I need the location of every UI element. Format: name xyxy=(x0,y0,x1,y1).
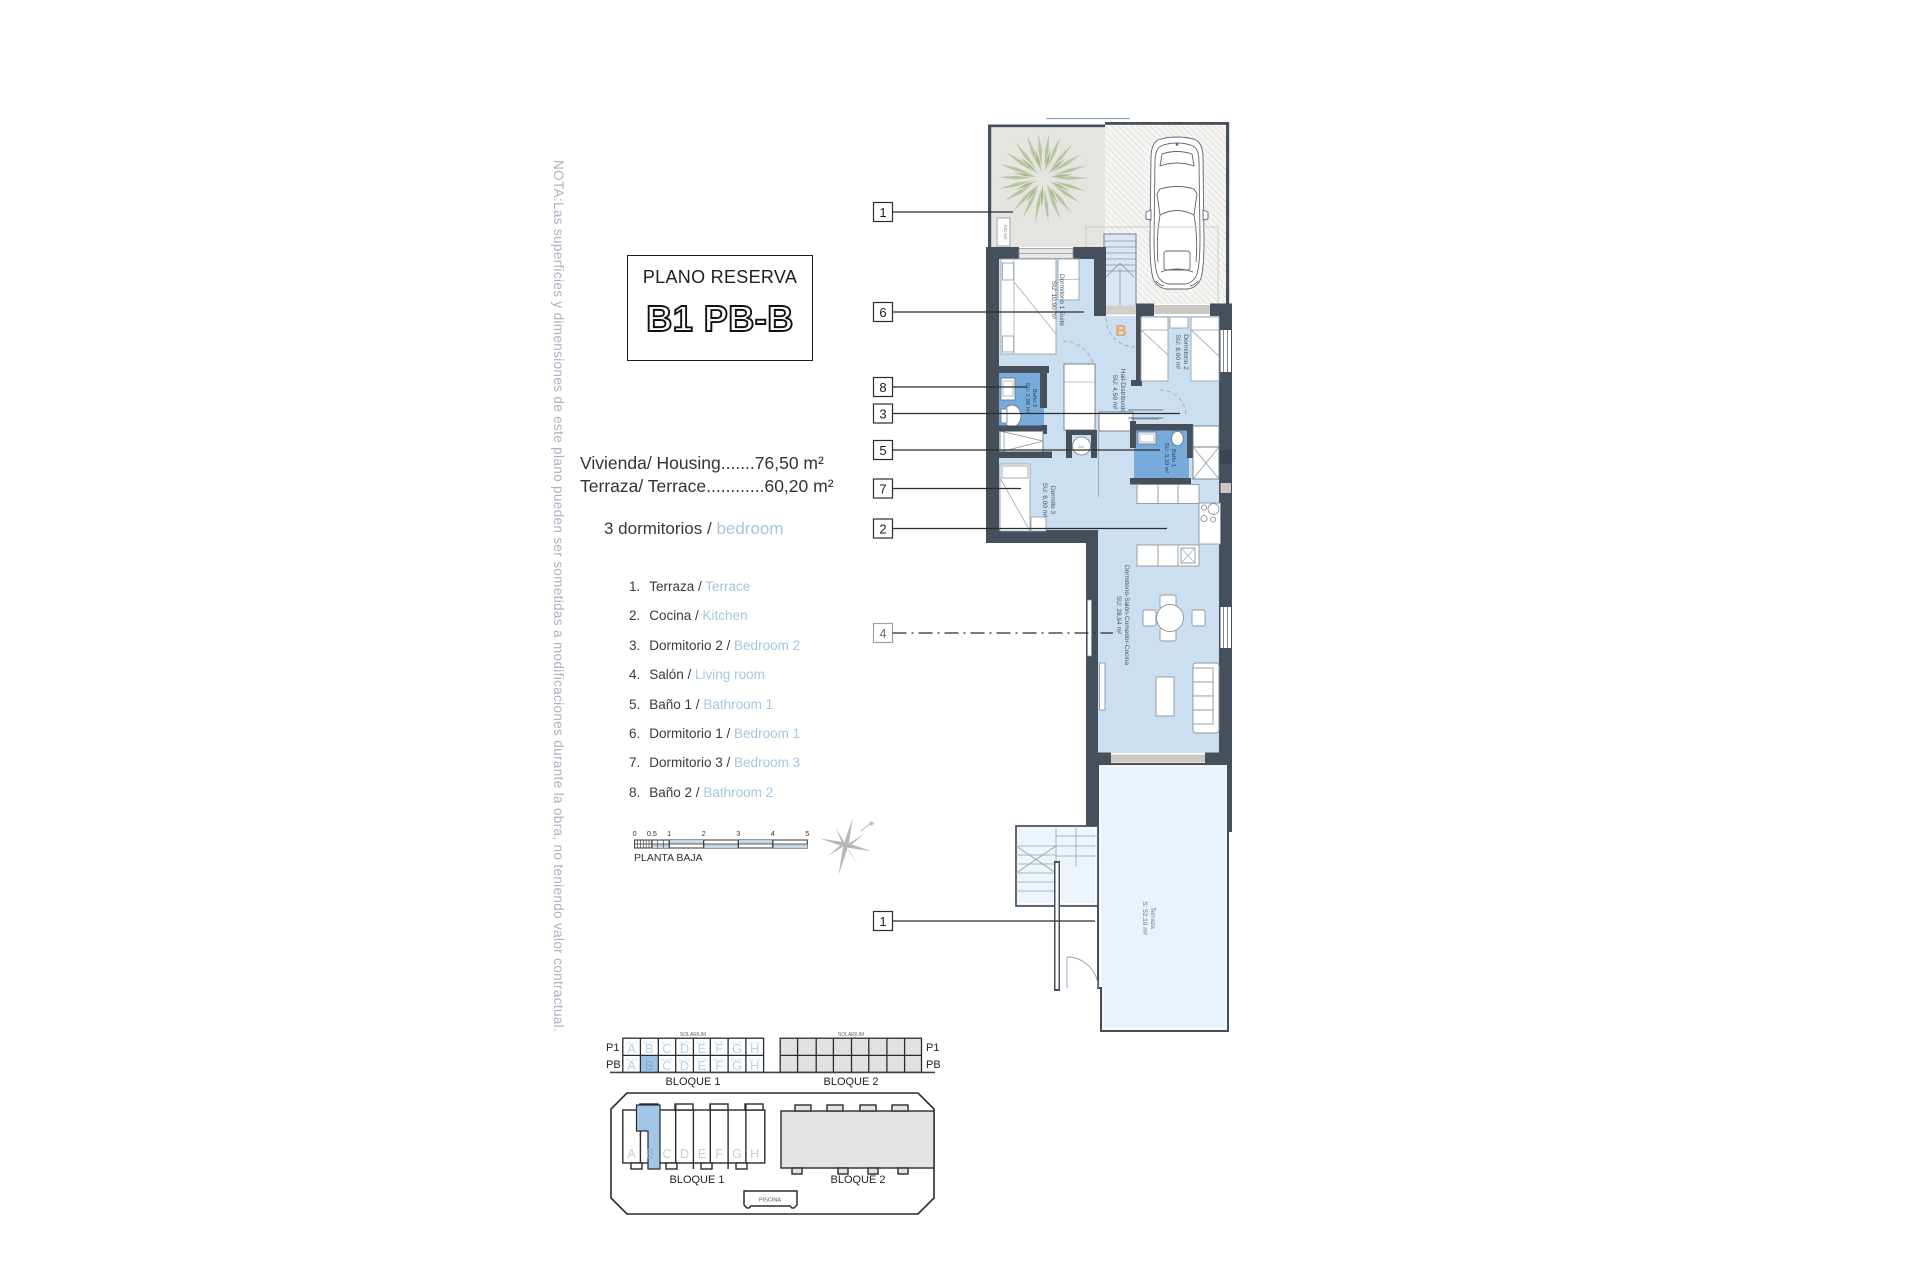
svg-text:5: 5 xyxy=(805,829,809,838)
svg-text:PB: PB xyxy=(926,1059,941,1071)
svg-text:BLOQUE 2: BLOQUE 2 xyxy=(830,1174,885,1186)
svg-text:F: F xyxy=(715,1147,723,1161)
svg-text:2: 2 xyxy=(879,522,886,537)
svg-text:P1: P1 xyxy=(606,1042,619,1054)
svg-text:SOLARIUM: SOLARIUM xyxy=(838,1032,864,1038)
svg-text:B1 PB: B1 PB xyxy=(661,1057,673,1062)
svg-text:1: 1 xyxy=(879,205,886,220)
svg-text:B1 P1: B1 P1 xyxy=(626,1040,638,1045)
svg-text:0: 0 xyxy=(633,829,637,838)
svg-text:Baño 2: Baño 2 xyxy=(1031,389,1037,407)
svg-text:B: B xyxy=(645,1058,654,1073)
svg-text:B1 PB: B1 PB xyxy=(731,1057,743,1062)
svg-text:B1 P1: B1 P1 xyxy=(749,1040,761,1045)
svg-text:B1 PB: B1 PB xyxy=(626,1057,638,1062)
svg-text:B1 P1: B1 P1 xyxy=(679,1040,691,1045)
svg-text:Dormitorio 1 Suite: Dormitorio 1 Suite xyxy=(1058,274,1065,326)
svg-text:SU: 4,50 m²: SU: 4,50 m² xyxy=(1111,375,1118,411)
svg-text:SU: 8,00 m²: SU: 8,00 m² xyxy=(1174,335,1181,371)
svg-text:B1 PB: B1 PB xyxy=(714,1057,726,1062)
svg-text:B1 P1: B1 P1 xyxy=(714,1040,726,1045)
svg-text:P1: P1 xyxy=(926,1042,939,1054)
svg-text:B1 P1: B1 P1 xyxy=(644,1040,656,1045)
svg-text:SU: 28,94 m²: SU: 28,94 m² xyxy=(1115,596,1122,635)
svg-text:SU: 10,90 m²: SU: 10,90 m² xyxy=(1050,281,1057,320)
svg-text:PISCINA: PISCINA xyxy=(759,1198,781,1204)
svg-text:B1 P1: B1 P1 xyxy=(697,1040,709,1045)
svg-text:PLANTA BAJA: PLANTA BAJA xyxy=(634,852,703,864)
svg-text:8: 8 xyxy=(879,380,886,395)
svg-text:B1 PB: B1 PB xyxy=(679,1057,691,1062)
svg-text:Hall-Distribuidor: Hall-Distribuidor xyxy=(1119,369,1126,416)
svg-text:3: 3 xyxy=(879,407,886,422)
svg-text:G: G xyxy=(732,1147,742,1161)
svg-text:3: 3 xyxy=(736,829,740,838)
svg-text:1: 1 xyxy=(667,829,671,838)
svg-text:A/C ext: A/C ext xyxy=(1003,225,1008,241)
svg-text:S: 52,10 m²: S: 52,10 m² xyxy=(1141,901,1148,935)
svg-text:2: 2 xyxy=(702,829,706,838)
svg-text:B: B xyxy=(1115,323,1127,340)
svg-text:SOLARIUM: SOLARIUM xyxy=(680,1032,706,1038)
svg-text:B1 PB: B1 PB xyxy=(749,1057,761,1062)
svg-text:0.5: 0.5 xyxy=(647,829,657,838)
svg-text:Dormitorio-Salón-Comedor-Cocin: Dormitorio-Salón-Comedor-Cocina xyxy=(1123,565,1130,665)
svg-text:SU: 3,19 m²: SU: 3,19 m² xyxy=(1163,443,1169,474)
svg-text:SU: 6,00 m²: SU: 6,00 m² xyxy=(1041,483,1048,519)
svg-text:D: D xyxy=(680,1147,689,1161)
svg-text:H: H xyxy=(750,1147,759,1161)
svg-text:A/C: A/C xyxy=(1078,445,1085,449)
svg-text:7: 7 xyxy=(879,482,886,497)
svg-text:BLOQUE 1: BLOQUE 1 xyxy=(669,1174,724,1186)
svg-text:Baño 1: Baño 1 xyxy=(1170,449,1176,467)
svg-text:BLOQUE 1: BLOQUE 1 xyxy=(665,1076,720,1088)
svg-text:C: C xyxy=(662,1147,671,1161)
svg-text:4: 4 xyxy=(771,829,775,838)
svg-text:5: 5 xyxy=(879,443,886,458)
svg-text:A: A xyxy=(627,1147,636,1161)
svg-text:Dormitorio 2: Dormitorio 2 xyxy=(1182,334,1189,370)
svg-text:B1 P1: B1 P1 xyxy=(662,1040,674,1045)
svg-text:E: E xyxy=(698,1147,706,1161)
svg-text:B1 P1: B1 P1 xyxy=(732,1040,744,1045)
svg-text:Terraza: Terraza xyxy=(1149,907,1156,929)
svg-text:6: 6 xyxy=(879,305,886,320)
svg-text:BLOQUE 2: BLOQUE 2 xyxy=(823,1076,878,1088)
svg-text:Dormito 3: Dormito 3 xyxy=(1049,486,1056,515)
svg-text:B: B xyxy=(646,1147,654,1161)
svg-text:B1 PB: B1 PB xyxy=(696,1057,708,1062)
svg-text:PB: PB xyxy=(606,1059,621,1071)
svg-text:1: 1 xyxy=(879,914,886,929)
svg-text:4: 4 xyxy=(879,626,886,641)
